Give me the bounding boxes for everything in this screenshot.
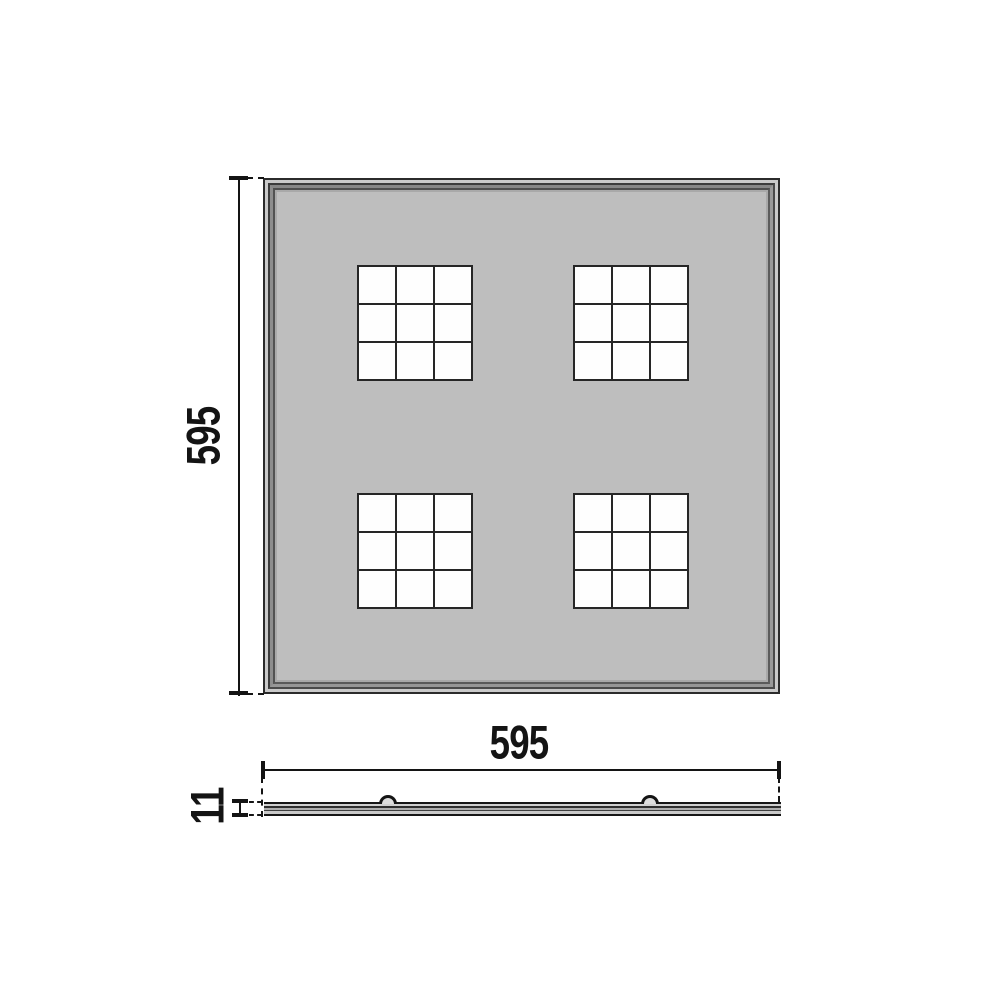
led-module-top-right xyxy=(573,265,689,381)
panel-bevel-inner xyxy=(273,188,770,684)
module-cell xyxy=(651,533,687,569)
module-cell xyxy=(575,267,611,303)
led-module-top-left xyxy=(357,265,473,381)
module-cell xyxy=(613,343,649,379)
extension-line-bottom xyxy=(247,693,264,695)
height-dimension-label: 595 xyxy=(176,407,231,466)
module-cell xyxy=(359,571,395,607)
module-cell xyxy=(359,267,395,303)
module-cell xyxy=(435,571,471,607)
module-cell xyxy=(575,495,611,531)
plan-view-panel-frame xyxy=(263,178,780,694)
module-cell xyxy=(575,533,611,569)
led-module-bottom-right xyxy=(573,493,689,609)
thickness-extension-bottom xyxy=(249,814,262,816)
thickness-extension-top xyxy=(249,801,262,803)
module-cell xyxy=(613,305,649,341)
module-cell xyxy=(435,267,471,303)
module-cell xyxy=(397,267,433,303)
mounting-clip-right xyxy=(641,795,659,804)
profile-view-bar xyxy=(264,802,781,816)
module-cell xyxy=(435,533,471,569)
module-cell xyxy=(651,343,687,379)
module-cell xyxy=(575,305,611,341)
module-cell xyxy=(397,571,433,607)
module-cell xyxy=(397,533,433,569)
panel-bevel-outer xyxy=(268,183,775,689)
led-module-bottom-left xyxy=(357,493,473,609)
module-cell xyxy=(613,267,649,303)
module-cell xyxy=(397,343,433,379)
module-cell xyxy=(651,571,687,607)
module-cell xyxy=(435,305,471,341)
extension-line-left xyxy=(261,777,263,817)
panel-face xyxy=(275,190,768,682)
module-cell xyxy=(397,495,433,531)
module-cell xyxy=(651,267,687,303)
module-cell xyxy=(613,533,649,569)
extension-line-top xyxy=(247,177,264,179)
module-cell xyxy=(359,343,395,379)
extension-line-right xyxy=(778,777,780,802)
module-cell xyxy=(435,495,471,531)
panel-bevel-mid xyxy=(270,185,773,687)
module-cell xyxy=(359,533,395,569)
module-cell xyxy=(575,571,611,607)
module-cell xyxy=(613,571,649,607)
dimension-tick-top xyxy=(229,176,248,180)
mounting-clip-left xyxy=(379,795,397,804)
module-cell xyxy=(359,495,395,531)
module-cell xyxy=(397,305,433,341)
height-dimension-line xyxy=(238,177,240,696)
module-cell xyxy=(651,495,687,531)
width-dimension-label: 595 xyxy=(490,715,549,770)
module-cell xyxy=(651,305,687,341)
dimension-tick-bottom xyxy=(229,691,248,695)
thickness-dimension-label: 11 xyxy=(180,787,235,824)
module-cell xyxy=(359,305,395,341)
module-cell xyxy=(435,343,471,379)
module-cell xyxy=(613,495,649,531)
module-cell xyxy=(575,343,611,379)
